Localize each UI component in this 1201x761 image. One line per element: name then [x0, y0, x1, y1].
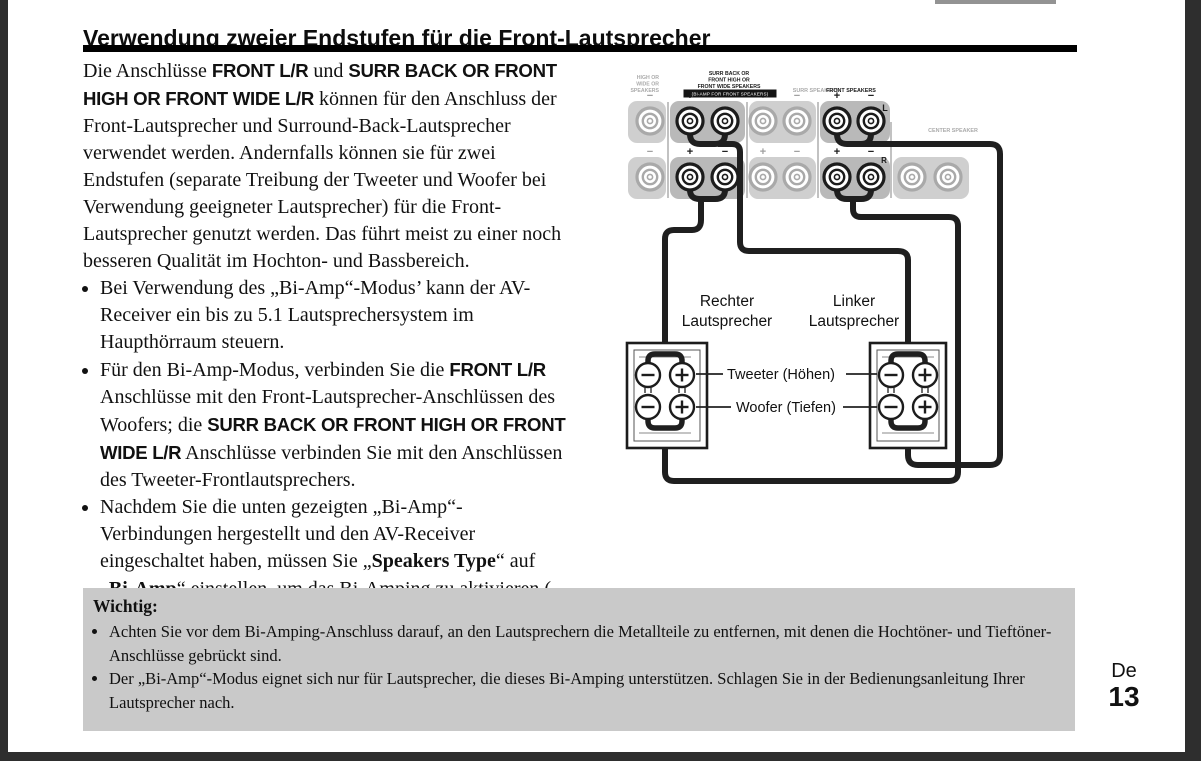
plus-sign: +	[760, 146, 766, 158]
svg-text:FRONT WIDE SPEAKERS: FRONT WIDE SPEAKERS	[698, 84, 761, 90]
language-label: De	[1082, 660, 1166, 682]
minus-sign: −	[868, 146, 874, 158]
bullet-item: Für den Bi-Amp-Modus, verbinden Sie die …	[100, 356, 572, 494]
minus-sign: −	[794, 146, 800, 158]
surr-back-group-label: SURR BACK OR FRONT HIGH OR FRONT WIDE SP…	[698, 71, 761, 90]
important-item: Der „Bi-Amp“-Modus eignet sich nur für L…	[109, 667, 1063, 714]
page-number: 13	[1082, 682, 1166, 712]
left-speaker-label: Linker	[833, 293, 875, 310]
cable-surrback-to-right-tweeter	[665, 197, 701, 356]
important-item: Achten Sie vor dem Bi-Amping-Anschluss d…	[109, 620, 1063, 667]
title-underline	[83, 45, 1077, 52]
left-speaker-box	[870, 343, 946, 448]
manual-page: Verwendung zweier Endstufen für die Fron…	[0, 0, 1201, 761]
right-margin-bar	[1185, 0, 1201, 761]
minus-sign: −	[647, 146, 653, 158]
svg-text:Lautsprecher: Lautsprecher	[809, 313, 899, 330]
svg-text:Lautsprecher: Lautsprecher	[682, 313, 772, 330]
important-note-box: Wichtig: Achten Sie vor dem Bi-Amping-An…	[83, 588, 1075, 731]
right-speaker-label: Rechter	[700, 293, 754, 310]
bullet-item: Bei Verwendung des „Bi-Amp“-Modus’ kann …	[100, 275, 572, 356]
plus-sign: +	[834, 146, 840, 158]
bottom-margin-bar	[0, 752, 1201, 761]
clipped-speaker-group-label: HIGH OR WIDE OR SPEAKERS	[630, 75, 659, 94]
tweeter-callout: Tweeter (Höhen)	[727, 367, 835, 383]
svg-text:HIGH OR: HIGH OR	[637, 75, 659, 81]
woofer-callout: Woofer (Tiefen)	[736, 400, 836, 416]
speaker-callouts: Rechter Lautsprecher Linker Lautsprecher…	[682, 293, 899, 416]
right-channel-label: R	[881, 156, 887, 165]
top-edge-strip	[935, 0, 1056, 4]
minus-sign: −	[722, 146, 728, 158]
right-speaker-box	[627, 343, 707, 448]
svg-text:SPEAKERS: SPEAKERS	[630, 88, 659, 94]
plus-sign: +	[687, 146, 693, 158]
left-channel-label: L	[882, 103, 888, 113]
svg-text:FRONT HIGH OR: FRONT HIGH OR	[708, 78, 750, 84]
intro-paragraph: Die Anschlüsse FRONT L/R und SURR BACK O…	[83, 57, 572, 275]
important-list: Achten Sie vor dem Bi-Amping-Anschluss d…	[93, 620, 1063, 714]
body-text-column: Die Anschlüsse FRONT L/R und SURR BACK O…	[83, 57, 572, 631]
svg-text:WIDE OR: WIDE OR	[636, 82, 659, 88]
important-heading: Wichtig:	[93, 596, 1063, 617]
left-margin-bar	[0, 0, 8, 761]
svg-text:SURR BACK OR: SURR BACK OR	[709, 71, 750, 77]
page-number-block: De 13	[1082, 660, 1166, 712]
biamp-wiring-diagram: − + − + − + − − + − + − + − HIGH OR WIDE…	[600, 58, 1090, 518]
biamp-badge-label: (BI-AMP FOR FRONT SPEAKERS)	[692, 92, 769, 97]
bullet-list: Bei Verwendung des „Bi-Amp“-Modus’ kann …	[83, 275, 572, 631]
center-speaker-label: CENTER SPEAKER	[928, 128, 978, 134]
front-speakers-label: FRONT SPEAKERS	[826, 88, 876, 94]
